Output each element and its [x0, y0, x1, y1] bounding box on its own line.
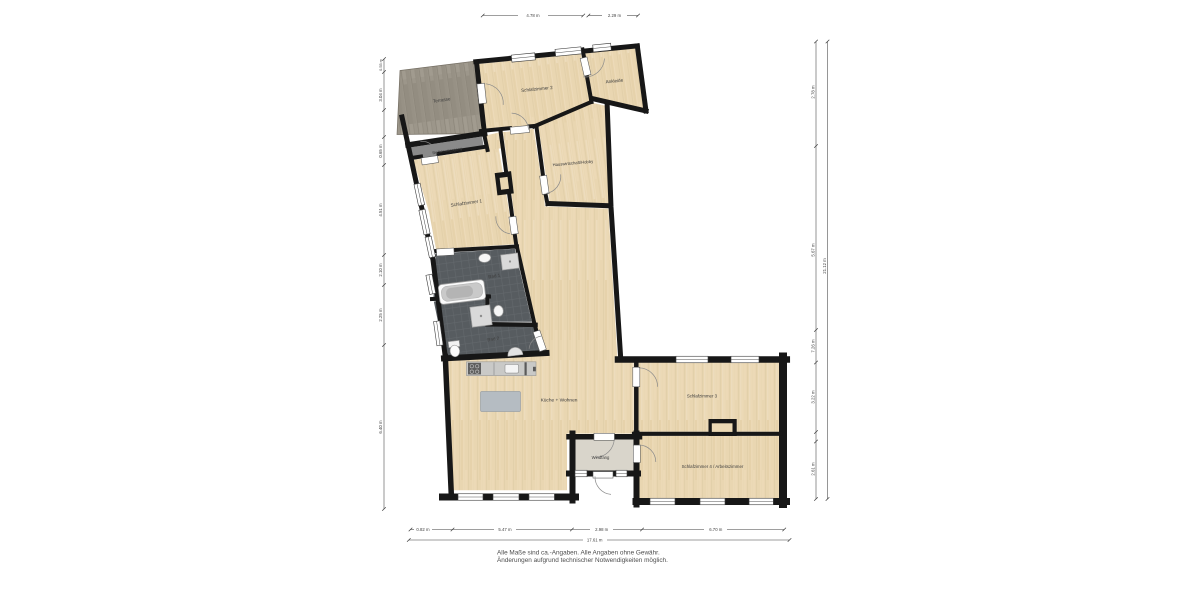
svg-text:Alle Maße sind ca.-Angaben. Al: Alle Maße sind ca.-Angaben. Alle Angaben… — [497, 550, 660, 557]
svg-text:6.40 m: 6.40 m — [378, 420, 383, 434]
svg-text:5.67 m: 5.67 m — [810, 243, 815, 257]
svg-text:3.04 m: 3.04 m — [378, 88, 383, 102]
svg-text:5.47 m: 5.47 m — [498, 527, 512, 532]
svg-text:17.61 m: 17.61 m — [587, 538, 603, 543]
svg-text:4.51 m: 4.51 m — [378, 203, 383, 217]
svg-text:2.78 m: 2.78 m — [810, 85, 815, 99]
svg-text:4.78 m: 4.78 m — [526, 13, 540, 18]
svg-text:Schlafzimmer 4 / Arbeitszimmer: Schlafzimmer 4 / Arbeitszimmer — [682, 464, 744, 469]
svg-text:2.10 m: 2.10 m — [378, 263, 383, 277]
svg-text:6.70 m: 6.70 m — [709, 527, 723, 532]
svg-text:Änderungen aufgrund technische: Änderungen aufgrund technischer Notwendi… — [497, 556, 668, 564]
svg-text:Schlafzimmer 3: Schlafzimmer 3 — [687, 394, 718, 399]
svg-text:0.65 m: 0.65 m — [378, 144, 383, 158]
svg-text:7.26 m: 7.26 m — [810, 339, 815, 353]
svg-text:2.29 m: 2.29 m — [608, 13, 622, 18]
svg-text:21.12 m: 21.12 m — [822, 258, 827, 274]
svg-text:0.55 m: 0.55 m — [379, 59, 383, 71]
svg-text:3.22 m: 3.22 m — [810, 390, 815, 404]
svg-text:2.25 m: 2.25 m — [378, 308, 383, 322]
svg-text:0.82 m: 0.82 m — [416, 527, 430, 532]
svg-text:Küche + Wohnen: Küche + Wohnen — [541, 398, 578, 404]
svg-text:Windfang: Windfang — [592, 455, 610, 460]
svg-text:2.61 m: 2.61 m — [810, 462, 815, 476]
svg-text:2.98 m: 2.98 m — [595, 527, 609, 532]
